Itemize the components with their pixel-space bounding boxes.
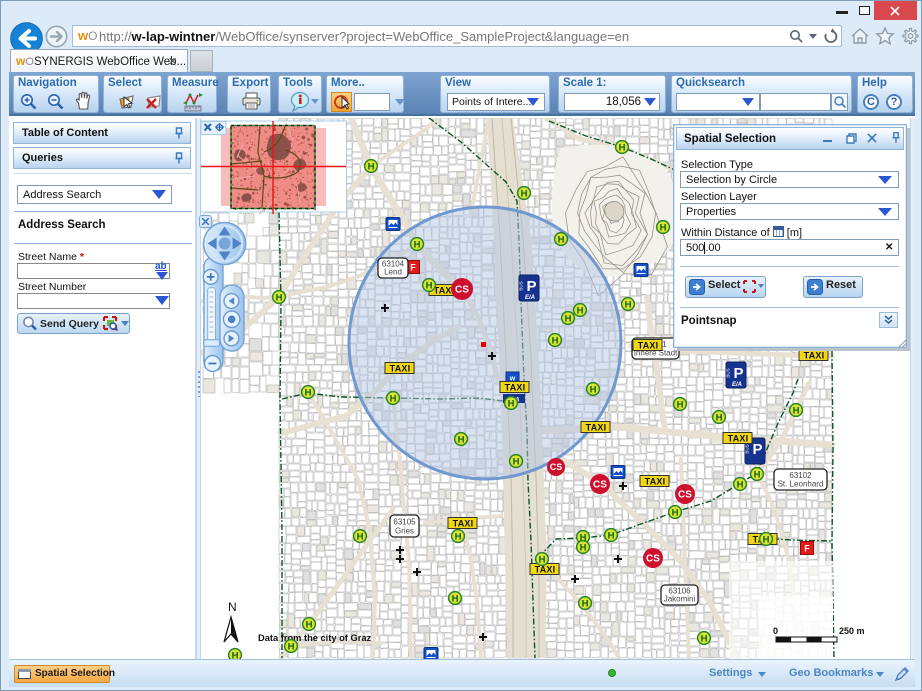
svg-text:H: H bbox=[763, 534, 770, 545]
svg-text:H: H bbox=[455, 531, 462, 542]
svg-text:TAXI: TAXI bbox=[505, 383, 526, 393]
svg-text:H: H bbox=[232, 650, 239, 659]
svg-text:H: H bbox=[608, 530, 615, 541]
svg-text:H: H bbox=[793, 405, 800, 416]
svg-text:H: H bbox=[580, 542, 587, 553]
svg-text:F: F bbox=[410, 263, 416, 273]
svg-text:TAXI: TAXI bbox=[728, 434, 749, 444]
svg-text:250 m: 250 m bbox=[839, 626, 865, 636]
svg-text:H: H bbox=[390, 393, 397, 404]
svg-text:H: H bbox=[521, 188, 528, 199]
svg-text:H: H bbox=[660, 222, 667, 233]
svg-text:CS: CS bbox=[593, 480, 607, 491]
svg-text:CS: CS bbox=[646, 554, 660, 565]
svg-text:H: H bbox=[513, 456, 520, 467]
svg-text:H: H bbox=[677, 399, 684, 410]
svg-text:H: H bbox=[737, 479, 744, 490]
svg-text:Jakomini: Jakomini bbox=[664, 595, 696, 604]
svg-text:BUS: BUS bbox=[745, 444, 750, 453]
svg-text:0: 0 bbox=[773, 626, 778, 636]
svg-text:CS: CS bbox=[550, 462, 563, 472]
svg-text:H: H bbox=[288, 641, 295, 652]
svg-text:TAXI: TAXI bbox=[638, 341, 659, 351]
svg-text:BUS: BUS bbox=[726, 368, 731, 377]
svg-text:H: H bbox=[306, 619, 313, 630]
svg-text:H: H bbox=[590, 384, 597, 395]
svg-text:E/A: E/A bbox=[732, 382, 742, 388]
svg-text:H: H bbox=[582, 598, 589, 609]
svg-text:H: H bbox=[458, 434, 465, 445]
svg-text:TAXI: TAXI bbox=[453, 519, 474, 529]
svg-text:F: F bbox=[804, 544, 810, 554]
svg-text:H: H bbox=[452, 593, 459, 604]
svg-text:BUS: BUS bbox=[519, 281, 524, 290]
svg-text:TAXI: TAXI bbox=[390, 364, 411, 374]
svg-text:P: P bbox=[733, 365, 743, 382]
svg-text:Lend: Lend bbox=[384, 268, 402, 277]
svg-text:H: H bbox=[357, 531, 364, 542]
svg-text:H: H bbox=[508, 398, 515, 409]
svg-text:H: H bbox=[577, 305, 584, 316]
svg-text:H: H bbox=[672, 507, 679, 518]
svg-text:Data from the city of Graz: Data from the city of Graz bbox=[258, 633, 371, 643]
svg-text:H: H bbox=[701, 633, 708, 644]
svg-text:H: H bbox=[426, 280, 433, 291]
svg-text:H: H bbox=[539, 554, 546, 565]
svg-text:63105: 63105 bbox=[393, 518, 416, 527]
svg-text:H: H bbox=[565, 313, 572, 324]
svg-text:P: P bbox=[752, 441, 762, 458]
svg-text:H: H bbox=[558, 234, 565, 245]
svg-text:H: H bbox=[276, 292, 283, 303]
svg-text:H: H bbox=[619, 142, 626, 153]
svg-text:TAXI: TAXI bbox=[804, 351, 825, 361]
svg-text:Gries: Gries bbox=[395, 527, 414, 536]
svg-text:TAXI: TAXI bbox=[645, 477, 666, 487]
svg-text:TAXI: TAXI bbox=[535, 565, 556, 575]
svg-text:TAXI: TAXI bbox=[586, 423, 607, 433]
svg-text:H: H bbox=[716, 412, 723, 423]
svg-text:H: H bbox=[414, 239, 421, 250]
svg-text:H: H bbox=[552, 335, 559, 346]
svg-text:E/A: E/A bbox=[525, 295, 535, 301]
svg-text:H: H bbox=[368, 161, 375, 172]
svg-text:H: H bbox=[305, 387, 312, 398]
svg-text:H: H bbox=[625, 299, 632, 310]
svg-text:N: N bbox=[228, 600, 237, 614]
svg-text:St. Leonhard: St. Leonhard bbox=[778, 480, 824, 489]
svg-text:CS: CS bbox=[678, 490, 692, 501]
svg-text:P: P bbox=[526, 278, 536, 295]
svg-text:CS: CS bbox=[455, 285, 469, 296]
svg-text:H: H bbox=[754, 469, 761, 480]
